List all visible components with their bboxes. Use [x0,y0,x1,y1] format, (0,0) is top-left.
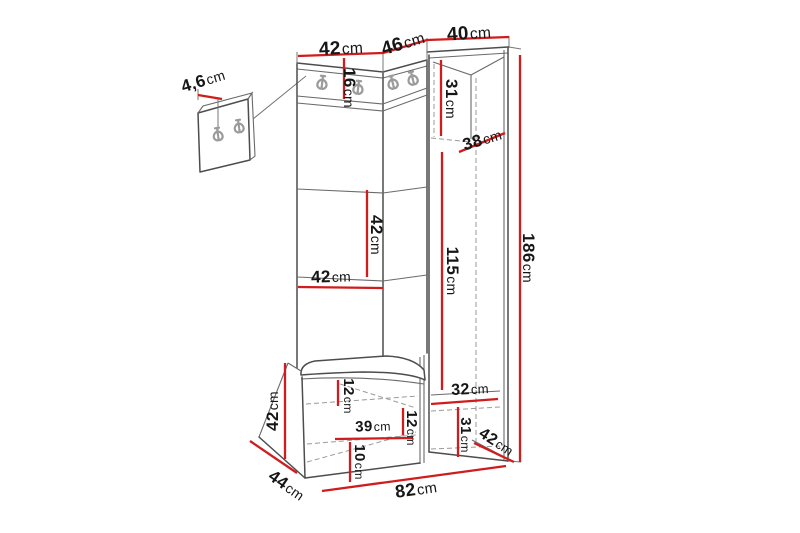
bench-side-top-edge [288,363,301,371]
dim-top-width-right: 40cm [427,21,509,45]
dim-total-height: 186cm [519,55,538,462]
dim-label: 16cm [340,68,359,108]
dim-label: 42cm [367,215,386,255]
dim-cabinet-bottom-height: 31cm [457,407,474,457]
dim-bench-height: 42cm [263,363,285,459]
seat-cushion [301,356,425,380]
dim-top-width-left: 42cm [298,37,383,60]
cabinet-top-edge [427,47,508,52]
dim-label: 42cm [318,37,363,60]
dim-label: 40cm [446,21,492,45]
dim-cabinet-base-depth: 42cm [474,425,517,462]
dim-label: 186cm [519,233,538,283]
unit-top-edge-inner [297,66,427,78]
dim-label: 31cm [457,417,474,453]
cabinet-bottom-dashed [431,407,500,411]
dim-label: 10cm [351,444,368,480]
dim-label: 31cm [442,79,461,119]
dim-label: 12cm [340,378,357,414]
panel-division-line [297,187,427,193]
seat-cushion-front-edge [301,378,424,384]
dim-cabinet-top-niche: 31cm [441,60,461,136]
coat-hook-icon [317,75,328,89]
bench-front-left-edge [302,377,305,478]
dim-door-height: 115cm [442,152,462,390]
dim-label: 32cm [451,380,490,399]
coat-hook-icon [407,71,419,86]
dim-label: 39cm [355,417,391,435]
dim-label: 4,6cm [179,65,228,96]
dim-label: 44cm [265,466,309,504]
dim-plinth-height: 10cm [350,442,368,482]
unit-top-edge [297,60,427,72]
drawer-dashed-line [306,396,418,404]
diagram-svg: 42cm 46cm 40cm 4,6cm 16cm 31cm 38cm [0,0,800,533]
furniture-dimension-diagram: 42cm 46cm 40cm 4,6cm 16cm 31cm 38cm [0,0,800,533]
dim-bench-inner-height: 12cm [403,408,420,446]
cabinet-top-edge-inner [429,53,508,58]
dim-label: 12cm [403,410,420,446]
dim-wall-panel-thickness: 4,6cm [179,65,228,99]
wall-panel-front-face [198,99,250,172]
coat-hook-icon [387,75,399,90]
hallway-unit-panels [297,60,427,368]
dim-label: 42cm [311,266,352,286]
wall-hook-panel [198,76,306,172]
dim-seat-drawer-height: 12cm [338,378,357,414]
dim-mid-panel-width: 42cm [298,266,383,288]
dim-cabinet-depth: 38cm [459,125,505,155]
dim-hook-strip-height: 16cm [340,58,359,108]
dim-top-width-corner: 46cm [379,27,428,60]
pointer-line [253,76,306,119]
niche-interior-edges [433,57,504,75]
dim-label: 46cm [379,27,428,60]
dim-label: 42cm [263,391,282,431]
dim-label: 115cm [443,247,462,296]
dim-label: 38cm [460,125,504,155]
